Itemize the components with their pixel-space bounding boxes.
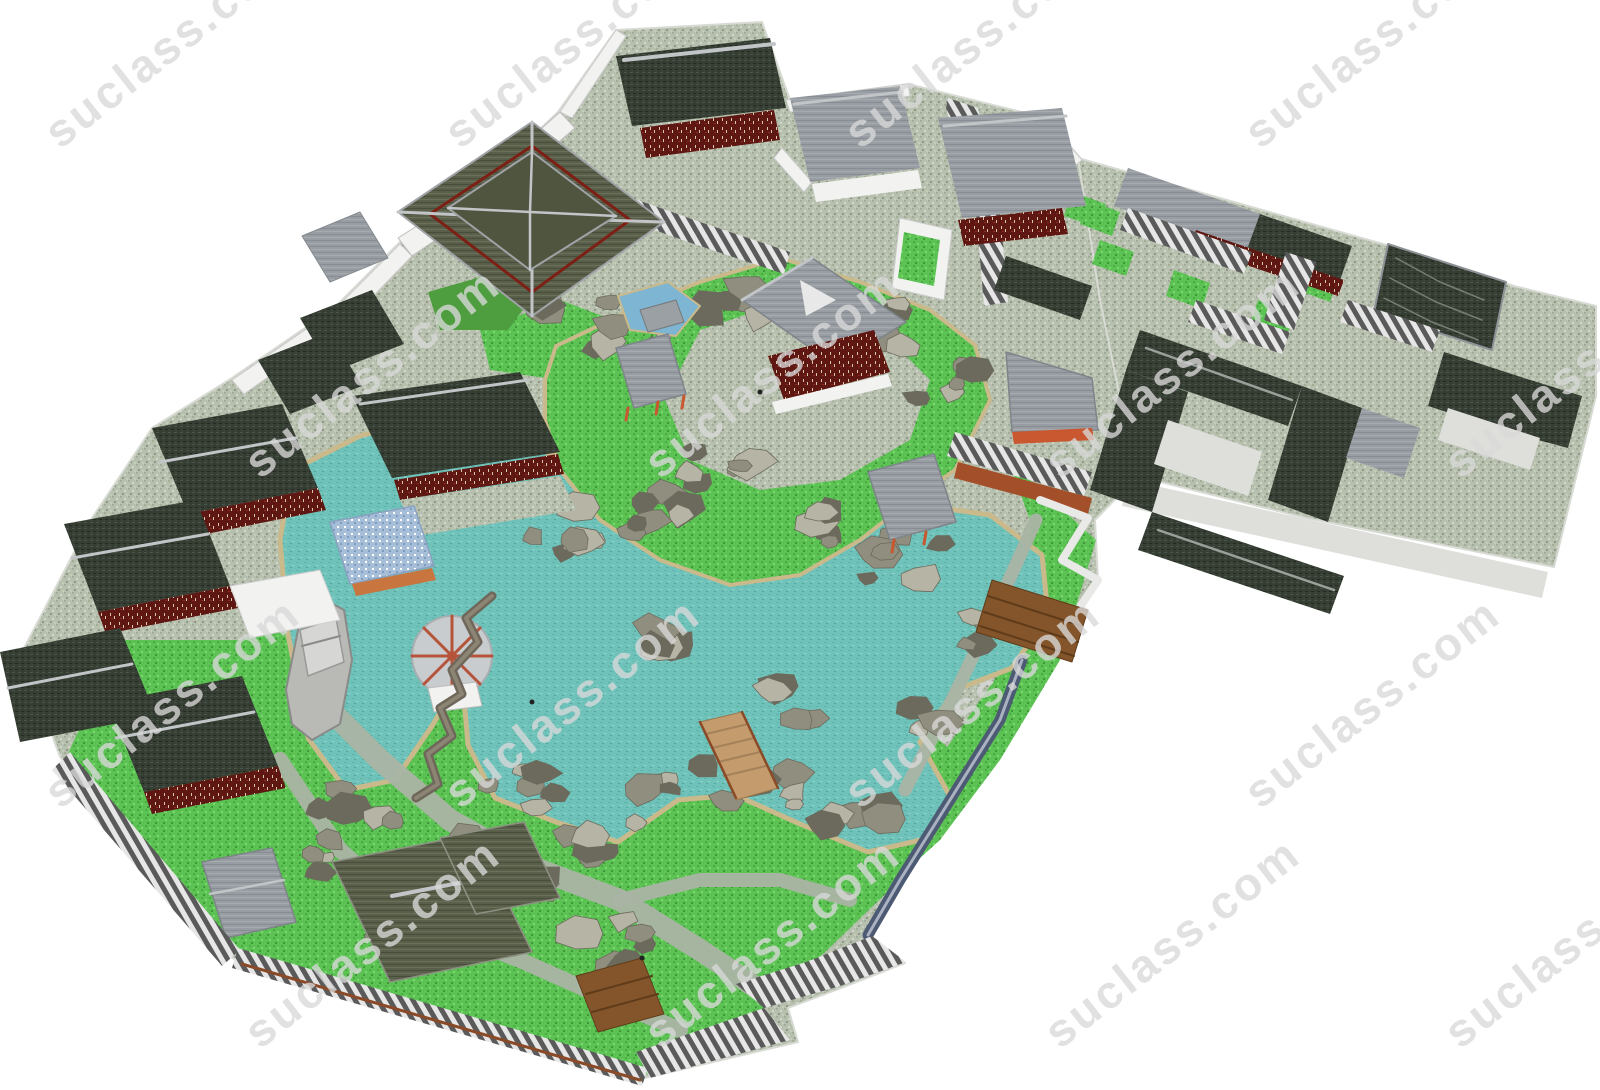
watermark-text: suclass.com bbox=[34, 0, 310, 158]
garden-model-viewport: suclass.comsuclass.comsuclass.comsuclass… bbox=[0, 0, 1600, 1090]
rock bbox=[728, 460, 753, 471]
pavilion-post bbox=[924, 532, 926, 544]
rock bbox=[786, 799, 804, 810]
pavilion-post bbox=[892, 540, 894, 552]
pavilion-post bbox=[626, 408, 628, 420]
person-figure bbox=[640, 956, 645, 961]
garden-3d-model-render: suclass.comsuclass.comsuclass.comsuclass… bbox=[0, 0, 1600, 1090]
watermark-text: suclass.com bbox=[1234, 0, 1510, 158]
watermark-text: suclass.com bbox=[1434, 827, 1600, 1058]
pavilion-post bbox=[682, 396, 684, 408]
pavilion-post bbox=[656, 402, 658, 414]
watermark-text: suclass.com bbox=[1034, 827, 1310, 1058]
umbrella-finial bbox=[447, 651, 457, 661]
watermark-text: suclass.com bbox=[1234, 587, 1510, 818]
cloud-wall-lawn bbox=[898, 232, 940, 286]
